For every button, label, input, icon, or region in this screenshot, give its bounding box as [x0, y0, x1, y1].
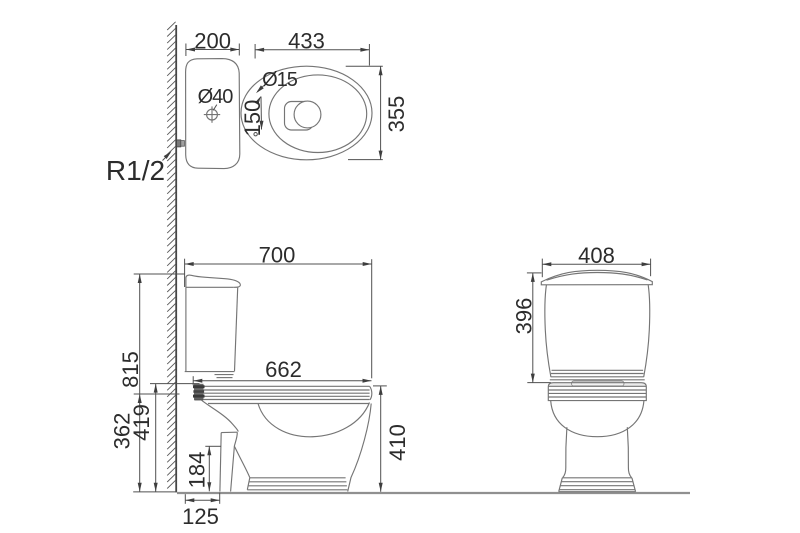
svg-text:700: 700: [259, 242, 296, 267]
svg-text:355: 355: [384, 96, 409, 133]
svg-text:Ø40: Ø40: [198, 86, 234, 108]
svg-text:Ø15: Ø15: [262, 69, 298, 91]
svg-text:419: 419: [129, 404, 154, 441]
svg-text:815: 815: [118, 351, 143, 388]
svg-text:396: 396: [511, 298, 536, 335]
svg-text:408: 408: [578, 243, 615, 268]
svg-text:R1/2: R1/2: [106, 155, 165, 186]
svg-text:150: 150: [240, 100, 265, 137]
svg-text:410: 410: [385, 424, 410, 461]
svg-text:662: 662: [265, 357, 302, 382]
svg-text:125: 125: [182, 504, 219, 529]
svg-text:200: 200: [194, 29, 231, 54]
svg-text:184: 184: [184, 452, 209, 489]
svg-text:433: 433: [288, 29, 325, 54]
